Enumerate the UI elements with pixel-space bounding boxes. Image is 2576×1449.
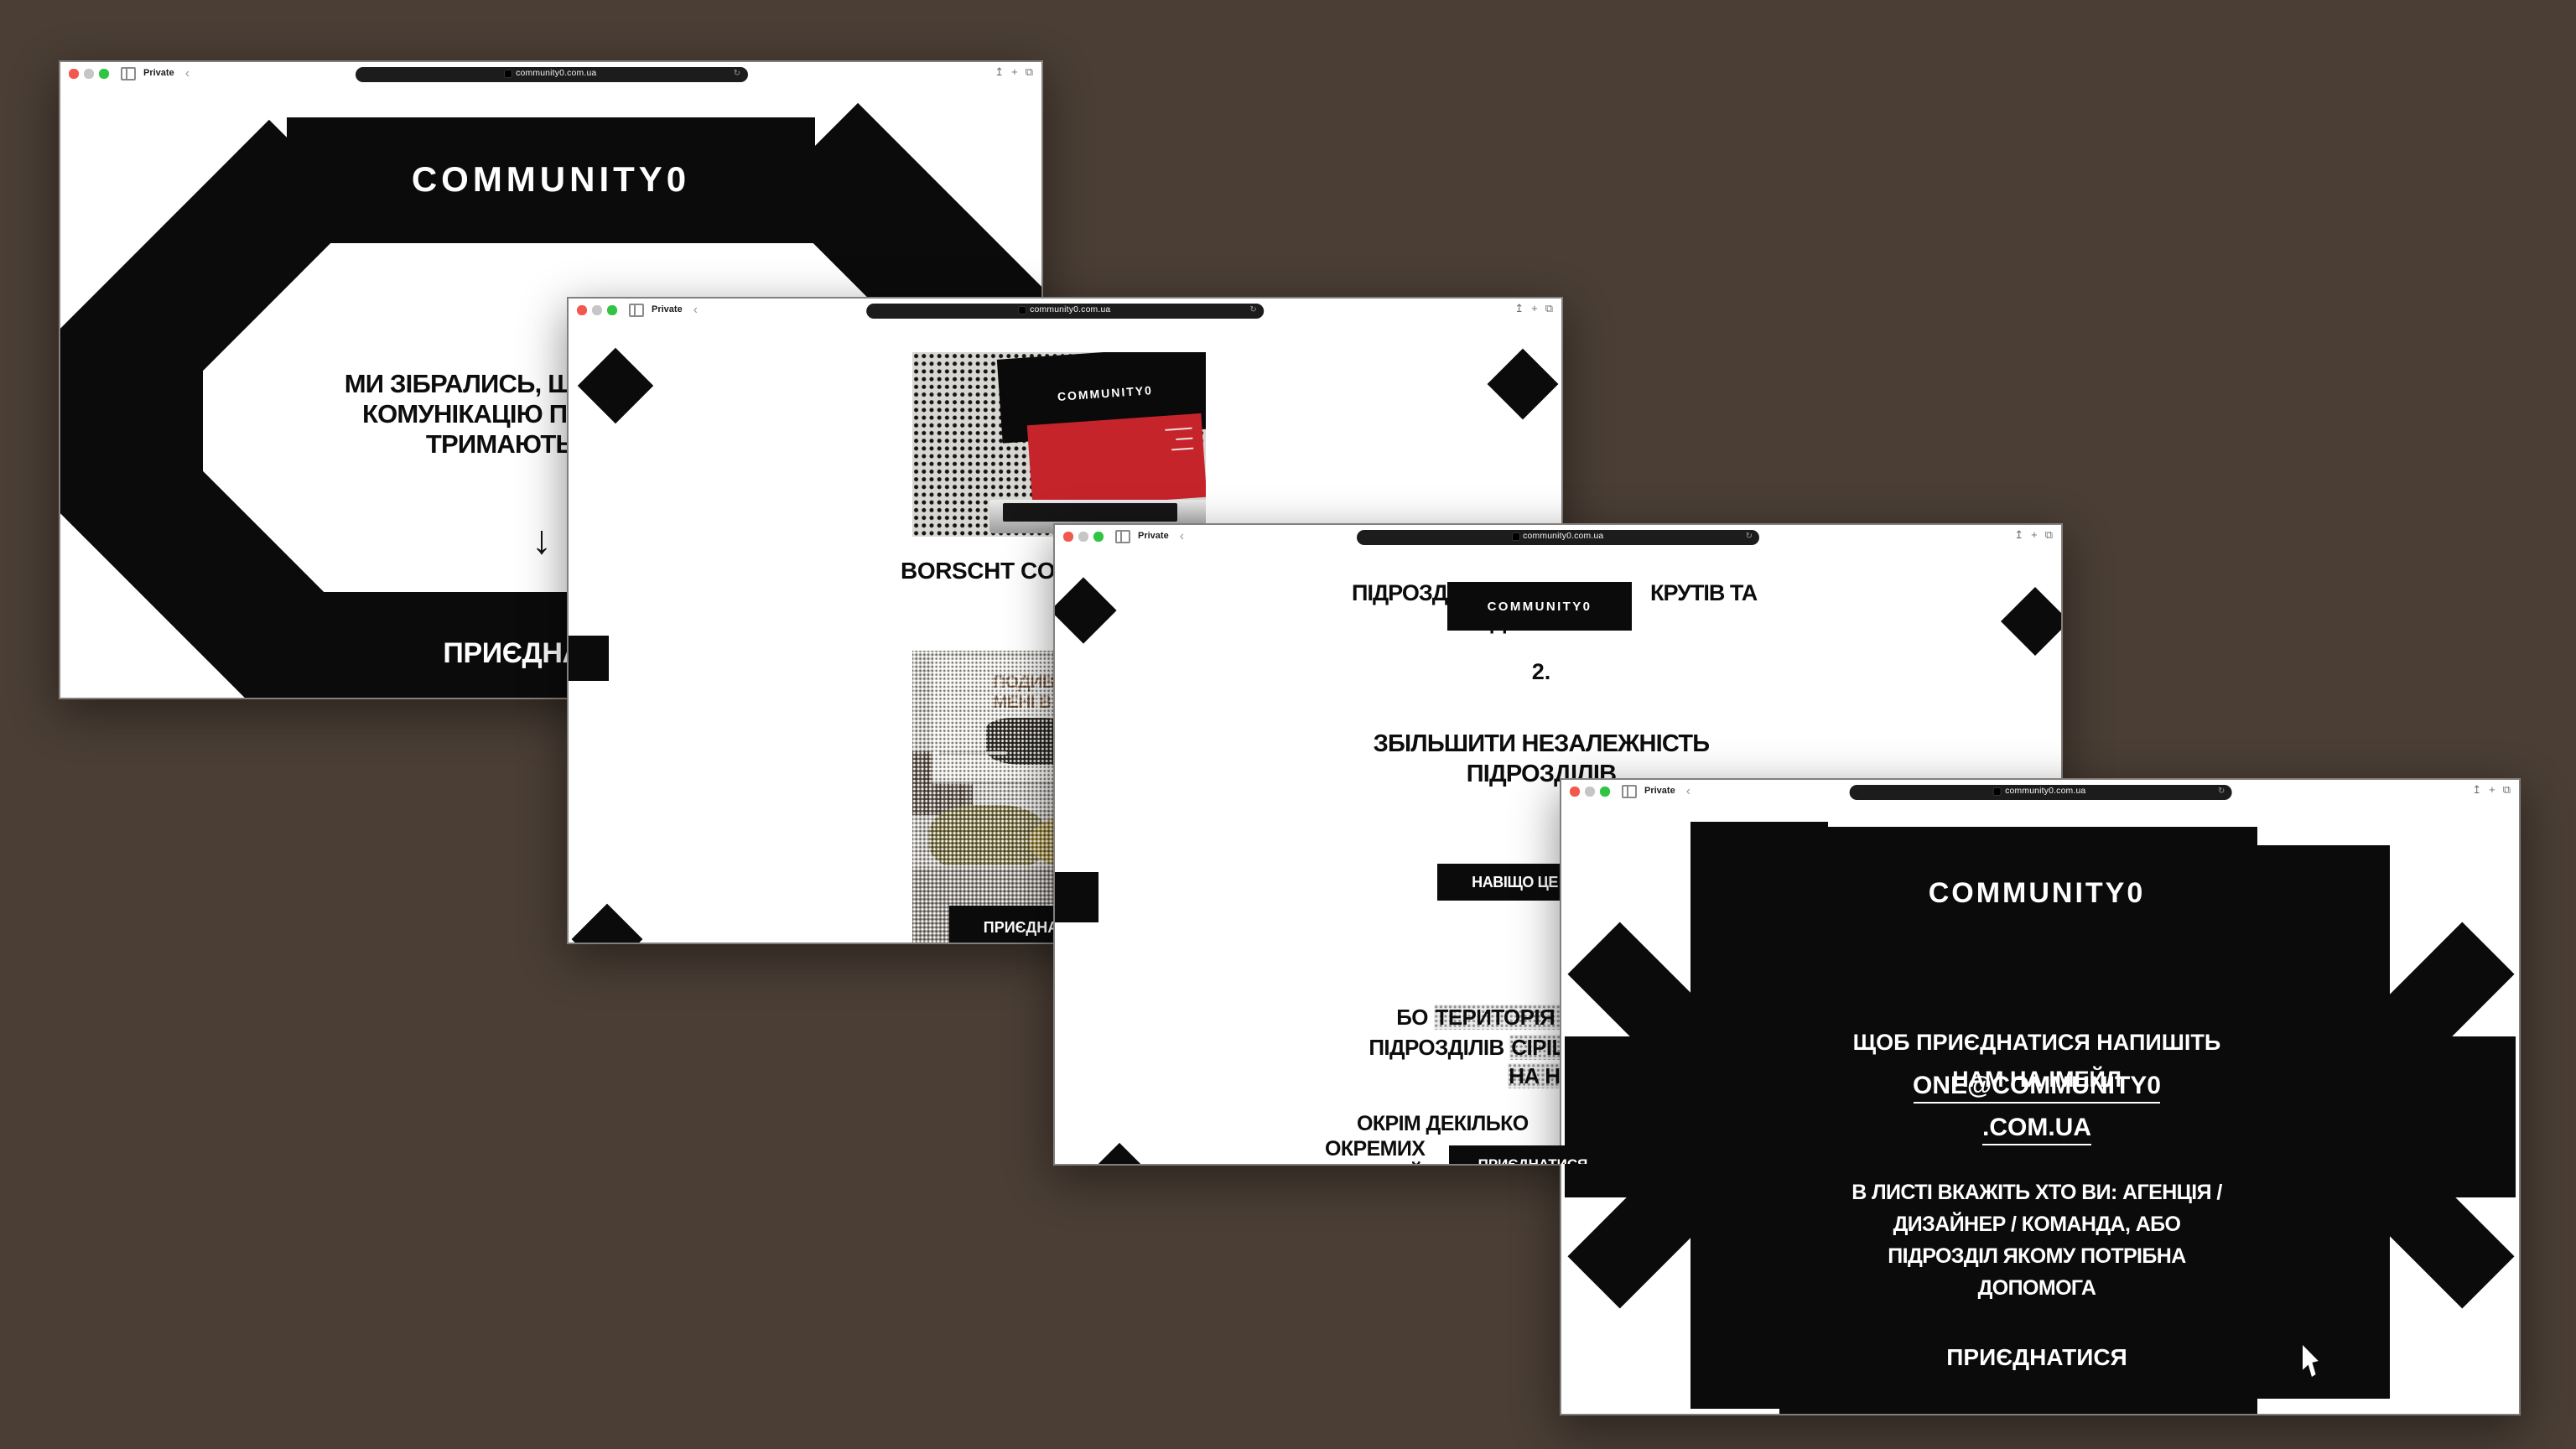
url-text: community0.com.ua	[2005, 787, 2085, 797]
url-text: community0.com.ua	[1030, 305, 1110, 315]
url-text: community0.com.ua	[516, 69, 596, 79]
private-label: Private	[1138, 532, 1169, 542]
address-bar[interactable]: community0.com.ua ↻	[866, 303, 1264, 318]
tabs-icon[interactable]: ⧉	[1026, 69, 1033, 79]
diamond-shape	[572, 904, 643, 944]
close-button[interactable]	[577, 306, 586, 315]
site-icon	[1020, 307, 1026, 314]
laptop-photo: COMMUNITY0	[912, 352, 1206, 537]
close-button[interactable]	[1570, 787, 1579, 797]
logo-banner: COMMUNITY0	[287, 117, 815, 243]
square-shape	[1055, 872, 1098, 922]
address-bar[interactable]: community0.com.ua ↻	[1849, 784, 2232, 799]
close-button[interactable]	[1063, 532, 1072, 542]
section-heading-left: ПІДРОЗД	[1156, 580, 1447, 605]
reload-icon[interactable]: ↻	[1249, 305, 1256, 315]
close-button[interactable]	[69, 70, 78, 79]
diamond-shape	[577, 348, 653, 424]
site-logo: COMMUNITY0	[1488, 598, 1592, 613]
square-shape	[569, 636, 609, 681]
private-label: Private	[652, 305, 683, 315]
title-bar[interactable]: Private ‹ community0.com.ua ↻ ↥ + ⧉	[569, 299, 1561, 322]
title-bar[interactable]: Private ‹ community0.com.ua ↻ ↥ + ⧉	[1561, 780, 2519, 803]
back-icon[interactable]: ‹	[1686, 787, 1690, 797]
private-label: Private	[1644, 787, 1675, 797]
case-heading: BORSCHT CO	[901, 557, 1055, 584]
diamond-shape	[2000, 586, 2063, 655]
contact-panel: COMMUNITY0 ЩОБ ПРИЄДНАТИСЯ НАПИШІТЬ НАМ …	[1779, 827, 2257, 1415]
laptop-keyboard	[1003, 503, 1177, 522]
step-number: 2.	[1457, 659, 1625, 684]
new-tab-icon[interactable]: +	[1011, 69, 1018, 79]
billboard-text: ПОДИВ МЕНІ В	[993, 673, 1054, 713]
tabs-icon[interactable]: ⧉	[1545, 305, 1553, 315]
minimize-button[interactable]	[84, 70, 93, 79]
back-icon[interactable]: ‹	[693, 305, 698, 315]
address-bar[interactable]: community0.com.ua ↻	[1357, 529, 1759, 544]
billboard-caption-line	[939, 751, 1006, 755]
scroll-down-arrow: ↓	[532, 518, 552, 565]
sidebar-icon[interactable]	[629, 304, 644, 317]
minimize-button[interactable]	[592, 306, 601, 315]
share-icon[interactable]: ↥	[1514, 305, 1524, 315]
minimize-button[interactable]	[1078, 532, 1088, 542]
title-bar[interactable]: Private ‹ community0.com.ua ↻ ↥ + ⧉	[60, 62, 1041, 86]
reload-icon[interactable]: ↻	[2218, 787, 2225, 797]
tabs-icon[interactable]: ⧉	[2503, 787, 2511, 797]
reload-icon[interactable]: ↻	[734, 69, 740, 79]
zoom-button[interactable]	[1093, 532, 1103, 542]
new-tab-icon[interactable]: +	[1531, 305, 1538, 315]
contact-note: В ЛИСТІ ВКАЖІТЬ ХТО ВИ: АГЕНЦІЯ / ДИЗАЙН…	[1779, 1177, 2257, 1305]
zoom-button[interactable]	[607, 306, 616, 315]
email-link[interactable]: ONE@COMMUNITY0 .COM.UA	[1779, 1065, 2257, 1149]
minimize-button[interactable]	[1585, 787, 1594, 797]
sidebar-icon[interactable]	[121, 68, 136, 80]
diamond-shape	[1488, 349, 1559, 420]
zoom-button[interactable]	[99, 70, 108, 79]
paragraph-line: ОКРЕМИХ	[1325, 1137, 1425, 1161]
laptop-logo: COMMUNITY0	[1057, 385, 1154, 403]
sidebar-icon[interactable]	[1115, 531, 1130, 543]
site-logo: COMMUNITY0	[412, 160, 690, 200]
hero-heading: МИ ЗІБРАЛИСЬ, Щ КОМУНІКАЦІЮ ПІ ТРИМАЮТЬ	[161, 371, 574, 462]
diamond-shape	[1087, 1142, 1150, 1166]
address-bar[interactable]: community0.com.ua ↻	[355, 66, 747, 81]
site-logo: COMMUNITY0	[1779, 877, 2257, 911]
back-icon[interactable]: ‹	[185, 69, 190, 79]
sidebar-icon[interactable]	[1622, 786, 1637, 798]
desktop: Private ‹ community0.com.ua ↻ ↥ + ⧉	[0, 0, 2576, 1449]
share-icon[interactable]: ↥	[2472, 787, 2481, 797]
diamond-shape	[1053, 577, 1117, 643]
reason-paragraph: БО ТЕРИТОРІЯ К ПІДРОЗДІЛІВ СІРІШ НА НУ	[1156, 1003, 1575, 1091]
new-tab-icon[interactable]: +	[2031, 532, 2038, 542]
share-icon[interactable]: ↥	[2014, 532, 2023, 542]
photo-tree	[929, 805, 1046, 872]
section-heading-right: КРУТІВ ТА	[1650, 580, 1757, 605]
laptop-screen	[1027, 413, 1206, 509]
back-icon[interactable]: ‹	[1180, 532, 1184, 542]
share-icon[interactable]: ↥	[995, 69, 1004, 79]
site-icon	[506, 70, 512, 77]
new-tab-icon[interactable]: +	[2489, 787, 2495, 797]
join-button[interactable]: ПРИЄДНАТИСЯ	[1449, 1145, 1617, 1166]
reload-icon[interactable]: ↻	[1746, 532, 1753, 542]
browser-window-contact: Private ‹ community0.com.ua ↻ ↥ + ⧉	[1560, 778, 2521, 1415]
paragraph-line: ОКРІМ ДЕКІЛЬКО	[1357, 1112, 1529, 1135]
title-bar[interactable]: Private ‹ community0.com.ua ↻ ↥ + ⧉	[1055, 525, 2061, 548]
private-label: Private	[143, 69, 174, 79]
page-contact: COMMUNITY0 ЩОБ ПРИЄДНАТИСЯ НАПИШІТЬ НАМ …	[1561, 803, 2519, 1414]
tabs-icon[interactable]: ⧉	[2045, 532, 2053, 542]
floating-logo-banner[interactable]: COMMUNITY0	[1447, 581, 1632, 630]
site-icon	[1995, 788, 2002, 795]
join-link[interactable]: ПРИЄДНАТИСЯ	[1779, 1343, 2257, 1370]
highlight-text: ТЕРИТОРІЯ К	[1434, 1005, 1575, 1030]
url-text: community0.com.ua	[1523, 532, 1603, 542]
site-icon	[1513, 533, 1519, 540]
zoom-button[interactable]	[1600, 787, 1609, 797]
